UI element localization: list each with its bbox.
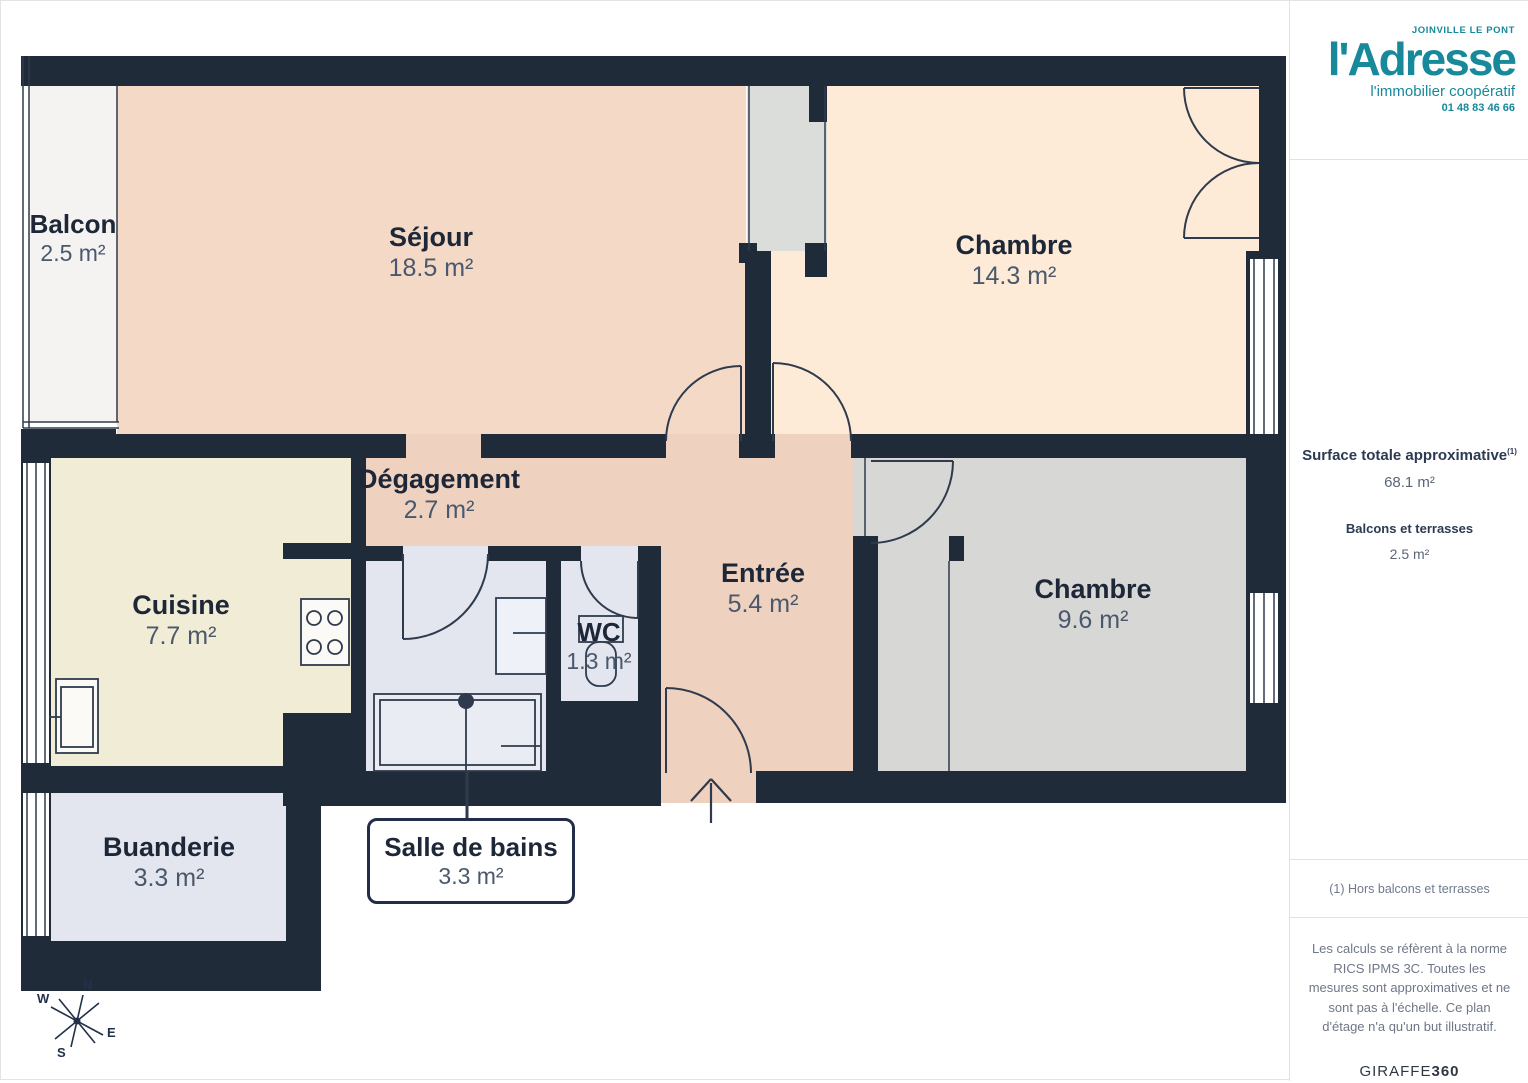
- shower-icon: [374, 693, 541, 771]
- surface-summary: Surface totale approximative(1) 68.1 m² …: [1290, 447, 1528, 562]
- room-fills: [29, 86, 1259, 941]
- surface-total-value: 68.1 m²: [1290, 474, 1528, 491]
- compass-south-label: S: [57, 1045, 66, 1060]
- info-sidebar: JOINVILLE LE PONT l'Adresse l'immobilier…: [1289, 1, 1528, 1081]
- balconies-value: 2.5 m²: [1290, 546, 1528, 562]
- agency-phone: 01 48 83 46 66: [1290, 102, 1515, 114]
- floor-plan-drawing: [1, 1, 1289, 1081]
- balconies-label: Balcons et terrasses: [1290, 521, 1528, 536]
- agency-logo: JOINVILLE LE PONT l'Adresse l'immobilier…: [1290, 1, 1528, 160]
- floor-plan: Balcon 2.5 m² Séjour 18.5 m² Chambre 14.…: [1, 1, 1289, 1081]
- footnote-marker: (1): [1507, 447, 1517, 456]
- compass-east-label: E: [107, 1025, 116, 1040]
- page: Balcon 2.5 m² Séjour 18.5 m² Chambre 14.…: [0, 0, 1528, 1080]
- disclaimer-text: Les calculs se réfèrent à la norme RICS …: [1308, 939, 1511, 1037]
- agency-tagline: l'immobilier coopératif: [1290, 83, 1515, 100]
- compass-north-label: N: [83, 977, 92, 992]
- room-name: Salle de bains: [384, 833, 557, 863]
- stove-icon: [301, 599, 349, 665]
- disclaimer-section: Les calculs se réfèrent à la norme RICS …: [1290, 917, 1528, 1081]
- room-area: 3.3 m²: [438, 863, 503, 889]
- footnote: (1) Hors balcons et terrasses: [1290, 859, 1528, 918]
- compass-west-label: W: [37, 991, 49, 1006]
- provider-suffix: 360: [1431, 1063, 1459, 1080]
- surface-total-label: Surface totale approximative(1): [1290, 447, 1528, 464]
- room-label-salle-de-bains: Salle de bains 3.3 m²: [367, 818, 575, 904]
- provider-name: GIRAFFE: [1359, 1063, 1431, 1080]
- vanity-icon: [496, 598, 546, 674]
- compass-rose: [51, 995, 103, 1047]
- kitchen-sink-icon: [49, 679, 98, 753]
- surface-total-text: Surface totale approximative: [1302, 447, 1507, 464]
- agency-name: l'Adresse: [1290, 36, 1515, 82]
